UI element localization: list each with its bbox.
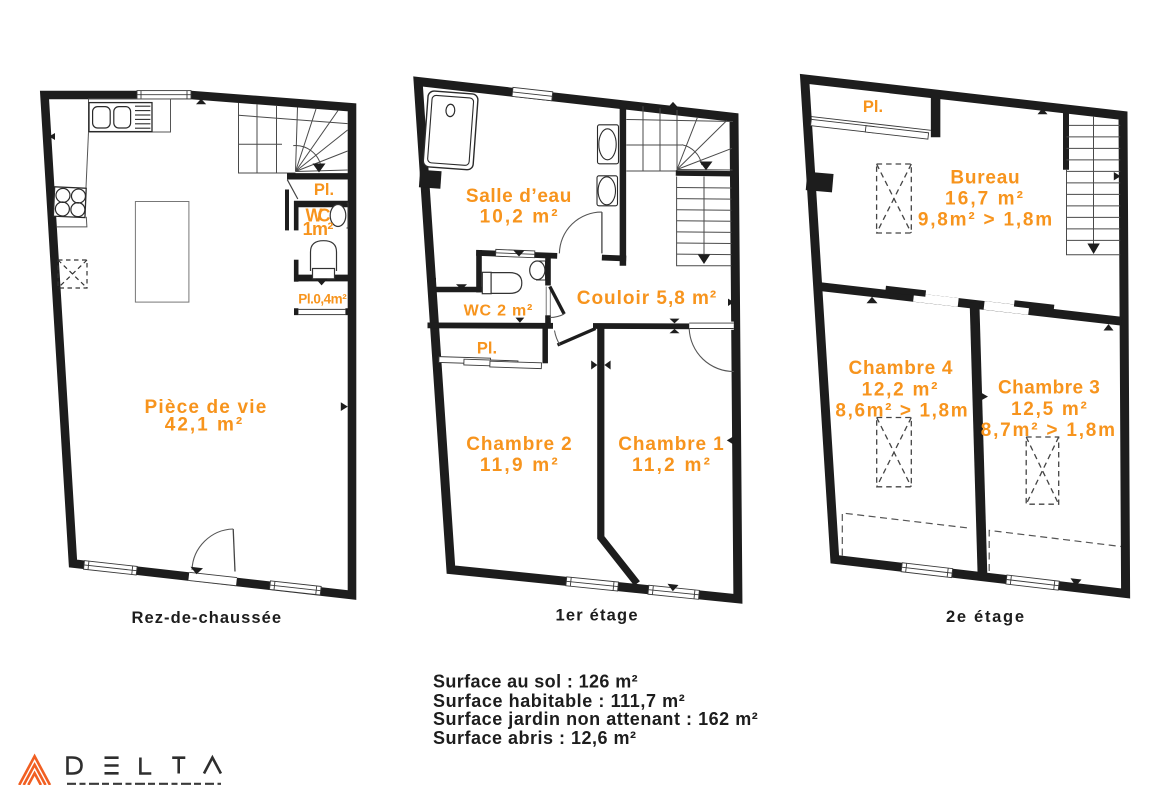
svg-text:16,7 m²: 16,7 m² [945,189,1023,210]
svg-text:1m²: 1m² [303,219,334,239]
svg-text:10,2 m²: 10,2 m² [480,207,558,228]
svg-text:Chambre 2: Chambre 2 [466,434,572,455]
svg-text:11,2 m²: 11,2 m² [632,455,710,476]
svg-text:8,7m² > 1,8m: 8,7m² > 1,8m [981,420,1115,441]
svg-text:42,1 m²: 42,1 m² [165,415,243,436]
svg-text:8,6m² > 1,8m: 8,6m² > 1,8m [835,401,967,422]
svg-text:12,5 m²: 12,5 m² [1011,399,1087,420]
svg-text:Surface au sol : 126 m²: Surface au sol : 126 m² [433,672,638,692]
svg-text:Chambre 3: Chambre 3 [998,378,1100,399]
svg-text:Chambre 1: Chambre 1 [618,434,724,455]
svg-text:Pl.: Pl. [863,98,883,116]
svg-text:Couloir 5,8 m²: Couloir 5,8 m² [577,288,717,309]
svg-text:Surface habitable : 111,7 m²: Surface habitable : 111,7 m² [433,691,685,711]
svg-text:Salle d’eau: Salle d’eau [466,186,571,207]
svg-text:Surface abris : 12,6 m²: Surface abris : 12,6 m² [433,728,636,748]
svg-text:2e étage: 2e étage [946,608,1024,626]
svg-text:9,8m² > 1,8m: 9,8m² > 1,8m [918,210,1052,231]
svg-text:Pl.0,4m²: Pl.0,4m² [298,291,347,306]
svg-text:WC 2 m²: WC 2 m² [464,302,533,319]
svg-text:Pl.: Pl. [314,181,334,199]
svg-text:1er étage: 1er étage [556,607,638,625]
svg-text:Surface jardin non attenant :: Surface jardin non attenant : 162 m² [433,709,758,729]
svg-text:Bureau: Bureau [950,168,1019,189]
svg-text:Chambre 4: Chambre 4 [849,358,953,379]
svg-text:Pl.: Pl. [477,340,497,358]
svg-text:Rez-de-chaussée: Rez-de-chaussée [132,609,281,627]
svg-text:12,2 m²: 12,2 m² [862,380,938,401]
svg-text:11,9 m²: 11,9 m² [480,455,558,476]
